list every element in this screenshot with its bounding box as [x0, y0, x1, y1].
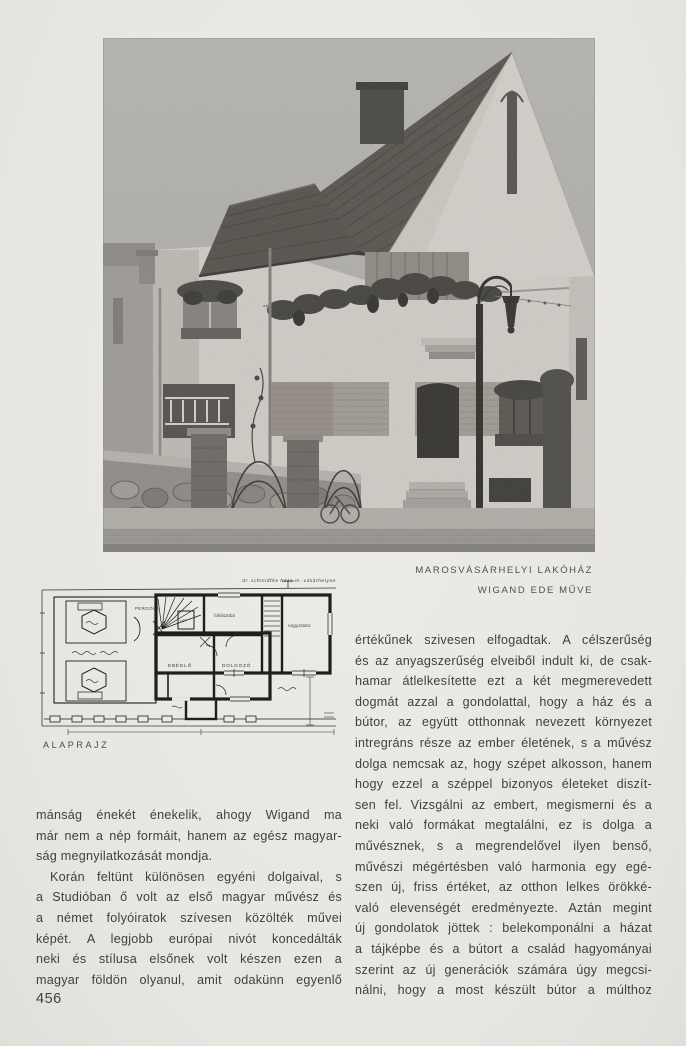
text-line: dogmát azzal a gondolattal, hogy a ház é…	[355, 692, 652, 713]
plan-room-labels: PERGOLA LIFT EBÉDLŐ DOLGOZÓ hálószoba na…	[135, 606, 311, 668]
text-line: való elevenségét eredményezte. Aztán meg…	[355, 898, 652, 919]
text-line: a Studióban ő volt az első magyar művész…	[36, 887, 342, 908]
text-column-left: mánság énekét énekelik, ahogy Wigand ma …	[36, 805, 342, 990]
text-line: új gondolatok jöttek : belekomponálni a …	[355, 918, 652, 939]
text-line: mánság énekét énekelik, ahogy Wigand ma	[36, 805, 342, 826]
plan-handwritten-title: dr. schmidtke háza m.-vásárhelyen	[242, 577, 336, 584]
text-line: Korán feltünt különösen egyéni dolgaival…	[36, 867, 342, 888]
text-line: már nem a nép formáit, hanem az egész ma…	[36, 826, 342, 847]
label-haloszoba: hálószoba	[214, 613, 236, 618]
text-line: neki való formákat megtalálni, ez is dol…	[355, 815, 652, 836]
text-line: művészi mégértésben való harmonia egy eg…	[355, 857, 652, 878]
floor-plan-drawing: dr. schmidtke háza m.-vásárhelyen	[38, 573, 342, 739]
floor-plan: dr. schmidtke háza m.-vásárhelyen	[38, 573, 342, 739]
text-line: neki és stílusa elsőnek volt készen ezen…	[36, 949, 342, 970]
text-line: szerint az új generációk számára úgy meg…	[355, 960, 652, 981]
text-line: nálni, hogy a most készült bútor a múlth…	[355, 980, 652, 1001]
text-line: hamar átlelkesítette ezt a két megmereve…	[355, 671, 652, 692]
text-line: és az anyagszerűség elveiből indult ki, …	[355, 651, 652, 672]
plan-pergola-terrace	[54, 597, 156, 703]
label-nagyszoba: nagyszoba	[288, 623, 311, 628]
page-number: 456	[36, 991, 62, 1007]
text-line: a tájképbe és a bútort a család hagyomán…	[355, 939, 652, 960]
text-column-right: értékűnek szivesen elfogadtak. A célszer…	[355, 630, 652, 1001]
text-line: intregráns része az ember életének, s a …	[355, 733, 652, 754]
text-line: a német folyóiratok szívesen közölték mű…	[36, 908, 342, 929]
text-line: hogy ezzel a széppel bizonyos életeket d…	[355, 774, 652, 795]
text-line: értékűnek szivesen elfogadtak. A célszer…	[355, 630, 652, 651]
text-line: képét. A legjobb európai nivót koncedált…	[36, 929, 342, 950]
house-photo	[103, 38, 595, 552]
text-line: művésznek, s a megrendelővel ilyen benső…	[355, 836, 652, 857]
text-line: dolga nemcsak az, hogy szépet alkosson, …	[355, 754, 652, 775]
text-line: sen fel. Vizsgálni az embert, megismerni…	[355, 795, 652, 816]
label-dolgozo: DOLGOZÓ	[222, 662, 251, 668]
text-line: ság megnyilatkozását mondja.	[36, 846, 342, 867]
text-line: szen új, friss értéket, az otthon lelkes…	[355, 877, 652, 898]
label-lift: LIFT	[180, 619, 187, 623]
label-pergola: PERGOLA	[135, 606, 159, 611]
photo-grain	[103, 38, 595, 552]
plan-window-marks	[172, 593, 332, 701]
text-line: magyar földön olyanul, amit odakünn egye…	[36, 970, 342, 991]
magazine-page: MAROSVÁSÁRHELYI LAKÓHÁZ WIGAND EDE MŰVE …	[0, 0, 686, 1046]
plan-label: ALAPRAJZ	[43, 740, 109, 750]
text-line: bútor, az együtt otthonnak nevezett körn…	[355, 712, 652, 733]
label-ebedlo: EBÉDLŐ	[168, 662, 192, 668]
house-photo-drawing	[103, 38, 595, 552]
plan-facade-windows	[44, 716, 336, 722]
